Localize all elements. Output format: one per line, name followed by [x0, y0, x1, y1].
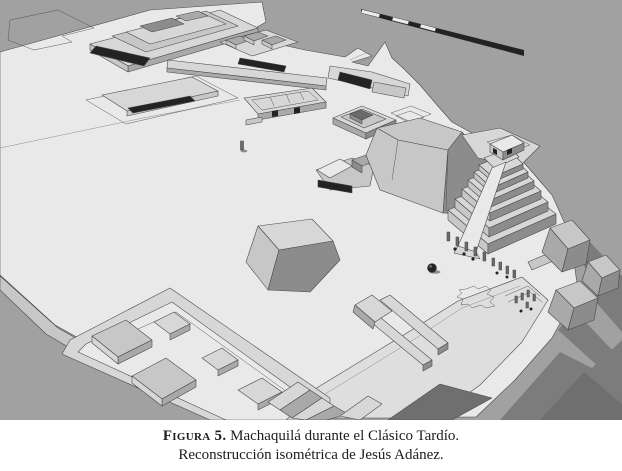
figure-credit: Reconstrucción isométrica de Jesús Adáne…	[178, 447, 443, 463]
reconstruction-figure	[0, 0, 622, 420]
figure-caption: Figura 5. Machaquilá durante el Clásico …	[0, 420, 622, 471]
caption-line-2: Reconstrucción isométrica de Jesús Adáne…	[178, 446, 443, 465]
figure-number-label: Figura 5.	[163, 428, 227, 444]
figure-title: Machaquilá durante el Clásico Tardío.	[230, 428, 459, 444]
paper-page: Figura 5. Machaquilá durante el Clásico …	[0, 0, 622, 471]
caption-line-1: Figura 5. Machaquilá durante el Clásico …	[163, 427, 459, 446]
